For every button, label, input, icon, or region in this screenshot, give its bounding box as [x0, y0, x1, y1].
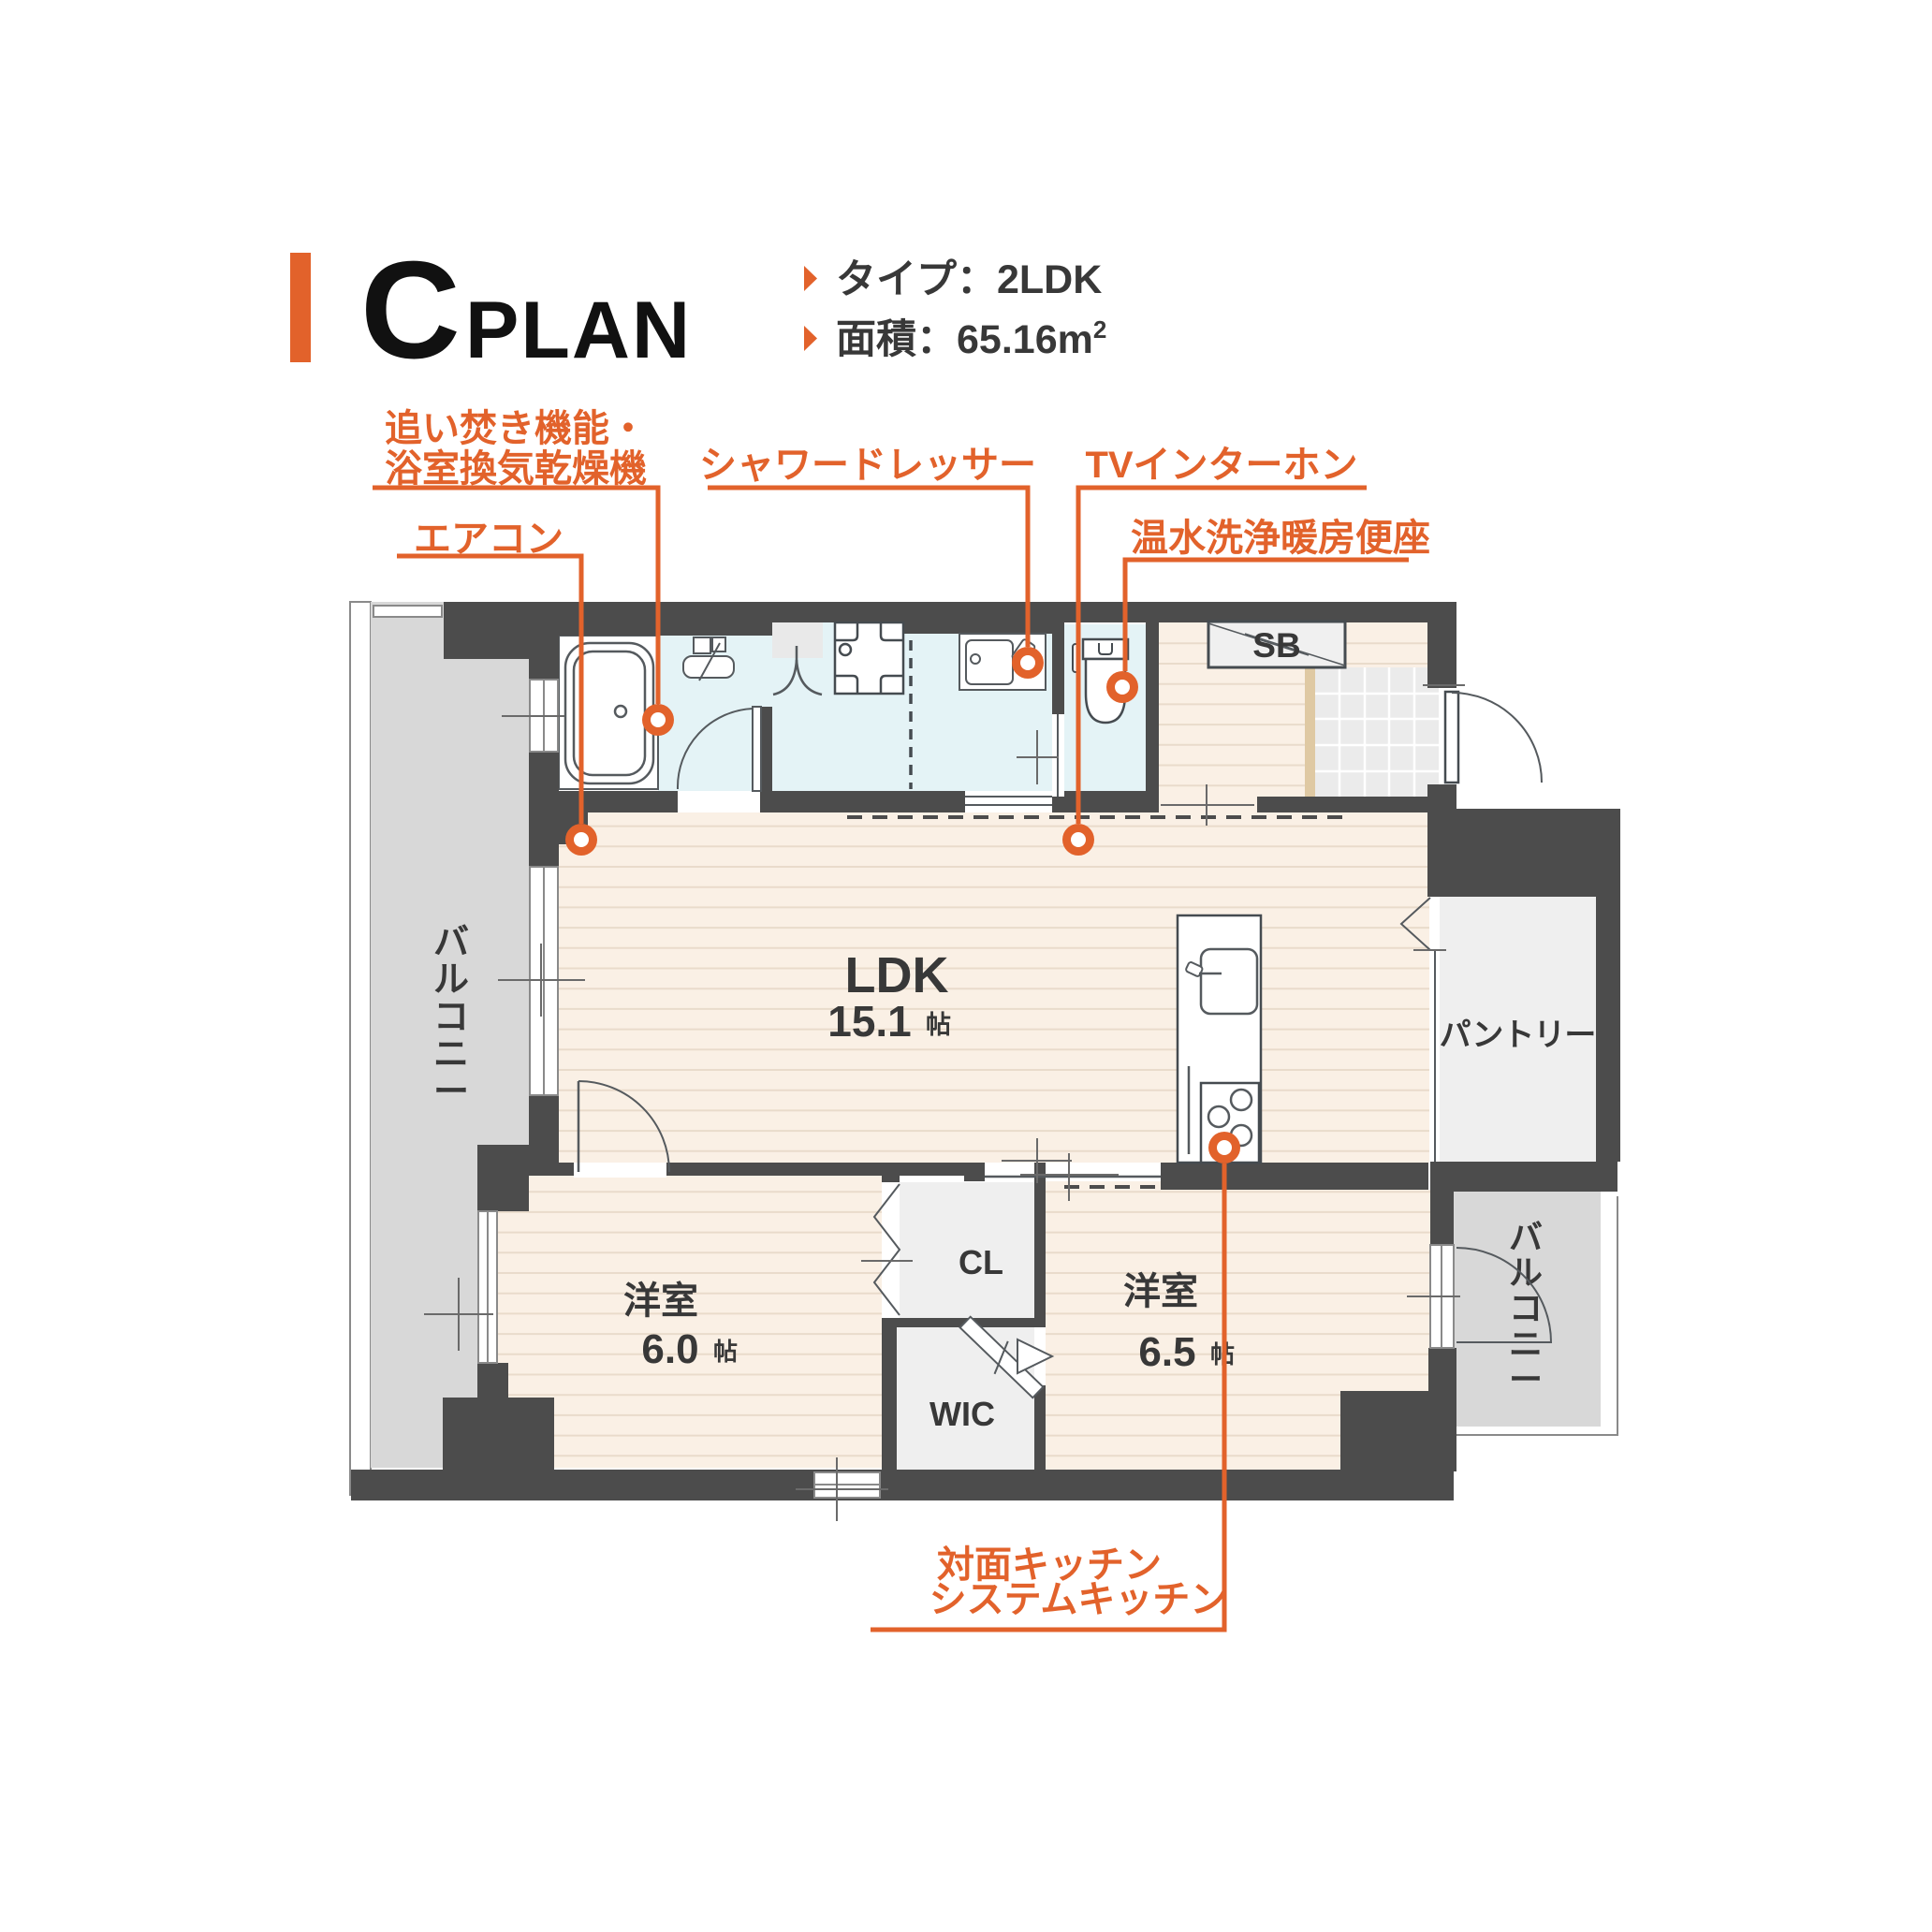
svg-text:CL: CL	[959, 1243, 1003, 1281]
svg-text:バ: バ	[433, 923, 469, 962]
svg-text:面積：65.16m2: 面積：65.16m2	[836, 315, 1106, 362]
svg-text:タイプ：2LDK: タイプ：2LDK	[836, 257, 1102, 302]
svg-text:C: C	[360, 233, 461, 388]
svg-text:洋室: 洋室	[1123, 1271, 1198, 1312]
svg-text:TVインターホン: TVインターホン	[1085, 445, 1357, 486]
svg-text:6.0: 6.0	[641, 1326, 698, 1372]
svg-text:6.5: 6.5	[1138, 1329, 1195, 1375]
svg-text:15.1: 15.1	[827, 997, 912, 1046]
svg-text:パントリー: パントリー	[1440, 1017, 1596, 1053]
svg-text:ニ: ニ	[433, 1035, 469, 1075]
svg-text:帖: 帖	[713, 1338, 738, 1366]
svg-text:ー: ー	[433, 1073, 469, 1112]
svg-text:WIC: WIC	[929, 1395, 995, 1433]
svg-text:コ: コ	[433, 998, 469, 1037]
svg-text:洋室: 洋室	[623, 1281, 698, 1322]
svg-text:シャワードレッサー: シャワードレッサー	[699, 445, 1036, 486]
svg-text:ー: ー	[1509, 1360, 1543, 1398]
svg-text:ル: ル	[433, 960, 469, 1000]
svg-text:温水洗浄暖房便座: 温水洗浄暖房便座	[1131, 518, 1430, 559]
svg-text:エアコン: エアコン	[414, 519, 563, 560]
svg-text:ル: ル	[1509, 1253, 1543, 1292]
svg-text:システムキッチン: システムキッチン	[929, 1579, 1228, 1620]
svg-text:帖: 帖	[926, 1011, 951, 1039]
svg-text:LDK: LDK	[845, 947, 949, 1003]
svg-text:SB: SB	[1252, 626, 1300, 665]
svg-text:浴室換気乾燥機: 浴室換気乾燥機	[385, 448, 647, 490]
svg-text:PLAN: PLAN	[465, 285, 692, 375]
svg-text:追い焚き機能・: 追い焚き機能・	[385, 408, 647, 449]
svg-text:バ: バ	[1509, 1218, 1543, 1256]
svg-text:ニ: ニ	[1509, 1325, 1543, 1363]
